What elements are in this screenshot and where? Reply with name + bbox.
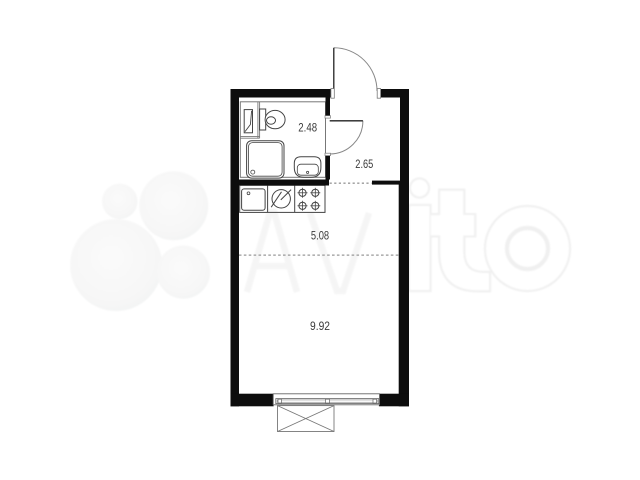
svg-text:9.92: 9.92	[310, 321, 330, 333]
svg-text:5.08: 5.08	[311, 231, 329, 243]
svg-text:2.65: 2.65	[355, 159, 373, 171]
svg-text:2.48: 2.48	[298, 122, 317, 134]
